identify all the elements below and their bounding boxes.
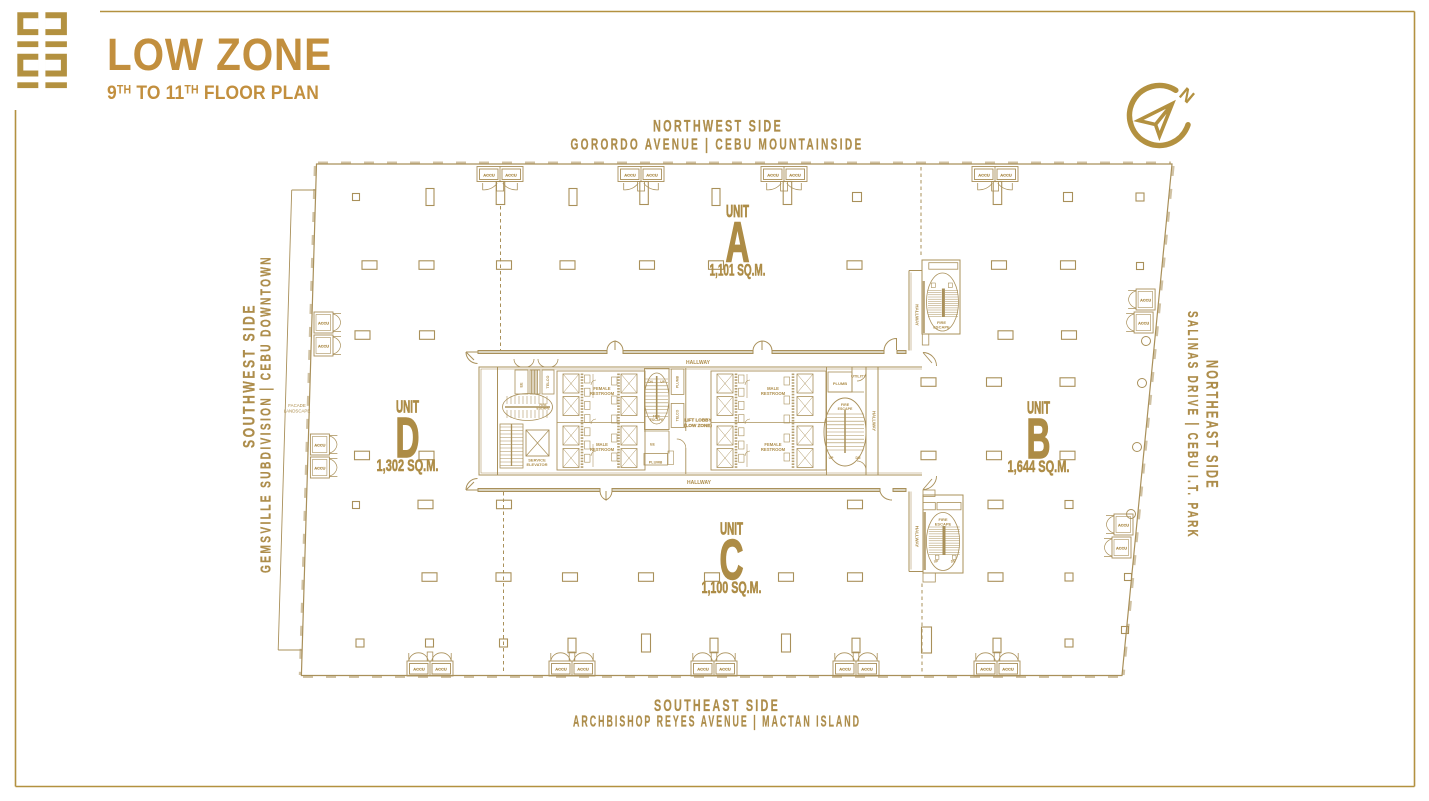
svg-text:ACCU: ACCU [646, 173, 658, 178]
svg-text:HALLWAY: HALLWAY [872, 411, 877, 431]
svg-text:RESTROOM: RESTROOM [590, 447, 615, 452]
svg-text:DN: DN [856, 456, 861, 460]
svg-text:ACCU: ACCU [978, 173, 990, 178]
svg-text:NORTHWEST SIDE: NORTHWEST SIDE [653, 117, 783, 136]
svg-text:HALLWAY: HALLWAY [686, 360, 711, 366]
svg-text:ACCU: ACCU [555, 667, 567, 672]
svg-text:RESTROOM: RESTROOM [761, 447, 786, 452]
svg-text:ACCU: ACCU [1116, 547, 1127, 551]
svg-text:PLUMB: PLUMB [649, 461, 663, 465]
svg-text:9TH TO 11TH FLOOR PLAN: 9TH TO 11TH FLOOR PLAN [107, 83, 319, 104]
svg-text:ACCU: ACCU [1002, 667, 1014, 672]
svg-text:LANDSCAPE: LANDSCAPE [284, 409, 311, 414]
svg-text:ACCU: ACCU [839, 667, 851, 672]
svg-text:RESTROOM: RESTROOM [761, 391, 786, 396]
svg-text:ACCU: ACCU [1000, 173, 1012, 178]
svg-text:ACCU: ACCU [314, 444, 325, 448]
svg-text:ACCU: ACCU [483, 173, 495, 178]
svg-text:TELCO: TELCO [676, 409, 680, 421]
svg-text:ACCU: ACCU [413, 667, 425, 672]
svg-text:ACCU: ACCU [719, 667, 731, 672]
svg-text:LIFT LOBBY: LIFT LOBBY [684, 418, 711, 423]
svg-text:EE: EE [520, 382, 524, 388]
svg-text:DN: DN [951, 560, 956, 564]
svg-text:ACCU: ACCU [318, 345, 329, 349]
svg-text:ESCAPE: ESCAPE [933, 325, 950, 330]
svg-text:1,101 SQ.M.: 1,101 SQ.M. [710, 261, 766, 280]
svg-text:RESTROOM: RESTROOM [590, 391, 615, 396]
svg-text:ELEVATOR: ELEVATOR [526, 462, 547, 467]
svg-text:ACCU: ACCU [505, 173, 517, 178]
svg-text:HALLWAY: HALLWAY [687, 480, 712, 486]
svg-text:SOUTHEAST SIDE: SOUTHEAST SIDE [654, 696, 780, 715]
svg-text:DN: DN [648, 380, 653, 384]
svg-text:ACCU: ACCU [861, 667, 873, 672]
svg-text:ESCAPE: ESCAPE [536, 407, 549, 411]
svg-text:ESCAPE: ESCAPE [650, 418, 664, 422]
svg-text:1,644 SQ.M.: 1,644 SQ.M. [1008, 457, 1070, 476]
svg-text:ACCU: ACCU [697, 667, 709, 672]
svg-text:ACCU: ACCU [577, 667, 589, 672]
svg-text:UP: UP [829, 456, 834, 460]
svg-text:ESCAPE: ESCAPE [838, 407, 853, 411]
svg-text:TELCO: TELCO [546, 376, 550, 389]
svg-text:PLUMB: PLUMB [676, 375, 680, 388]
svg-text:ACCU: ACCU [1138, 322, 1149, 326]
svg-text:LOW ZONE: LOW ZONE [107, 29, 332, 80]
svg-text:HALLWAY: HALLWAY [915, 526, 920, 548]
svg-text:GEMSVILLE SUBDIVISION | CEBU D: GEMSVILLE SUBDIVISION | CEBU DOWNTOWN [258, 255, 275, 573]
svg-text:ACCU: ACCU [980, 667, 992, 672]
svg-text:ESCAPE: ESCAPE [935, 522, 952, 527]
svg-text:1,100 SQ.M.: 1,100 SQ.M. [702, 578, 762, 597]
svg-text:ACCU: ACCU [1140, 299, 1151, 303]
svg-text:GORORDO AVENUE | CEBU MOUNTAIN: GORORDO AVENUE | CEBU MOUNTAINSIDE [571, 137, 864, 154]
svg-text:ACCU: ACCU [624, 173, 636, 178]
svg-text:SALINAS DRIVE | CEBU I.T. PARK: SALINAS DRIVE | CEBU I.T. PARK [1184, 311, 1201, 539]
svg-text:ARCHBISHOP REYES AVENUE | MACT: ARCHBISHOP REYES AVENUE | MACTAN ISLAND [573, 714, 861, 731]
svg-text:PLUMB: PLUMB [833, 381, 847, 386]
svg-text:ACCU: ACCU [318, 322, 329, 326]
svg-text:HALLWAY: HALLWAY [915, 304, 920, 326]
svg-text:1,302 SQ.M.: 1,302 SQ.M. [377, 456, 439, 475]
svg-text:ACCU: ACCU [435, 667, 447, 672]
svg-text:FACADE: FACADE [288, 403, 306, 408]
svg-text:ACCU: ACCU [789, 173, 801, 178]
svg-text:ACCU: ACCU [314, 467, 325, 471]
svg-text:SOUTHWEST SIDE: SOUTHWEST SIDE [240, 303, 259, 448]
svg-text:NORTHEAST SIDE: NORTHEAST SIDE [1203, 360, 1222, 490]
svg-text:ACCU: ACCU [1118, 524, 1129, 528]
svg-text:EE: EE [650, 443, 655, 447]
svg-text:ACCU: ACCU [767, 173, 779, 178]
svg-text:(LOW ZONE): (LOW ZONE) [684, 423, 712, 428]
